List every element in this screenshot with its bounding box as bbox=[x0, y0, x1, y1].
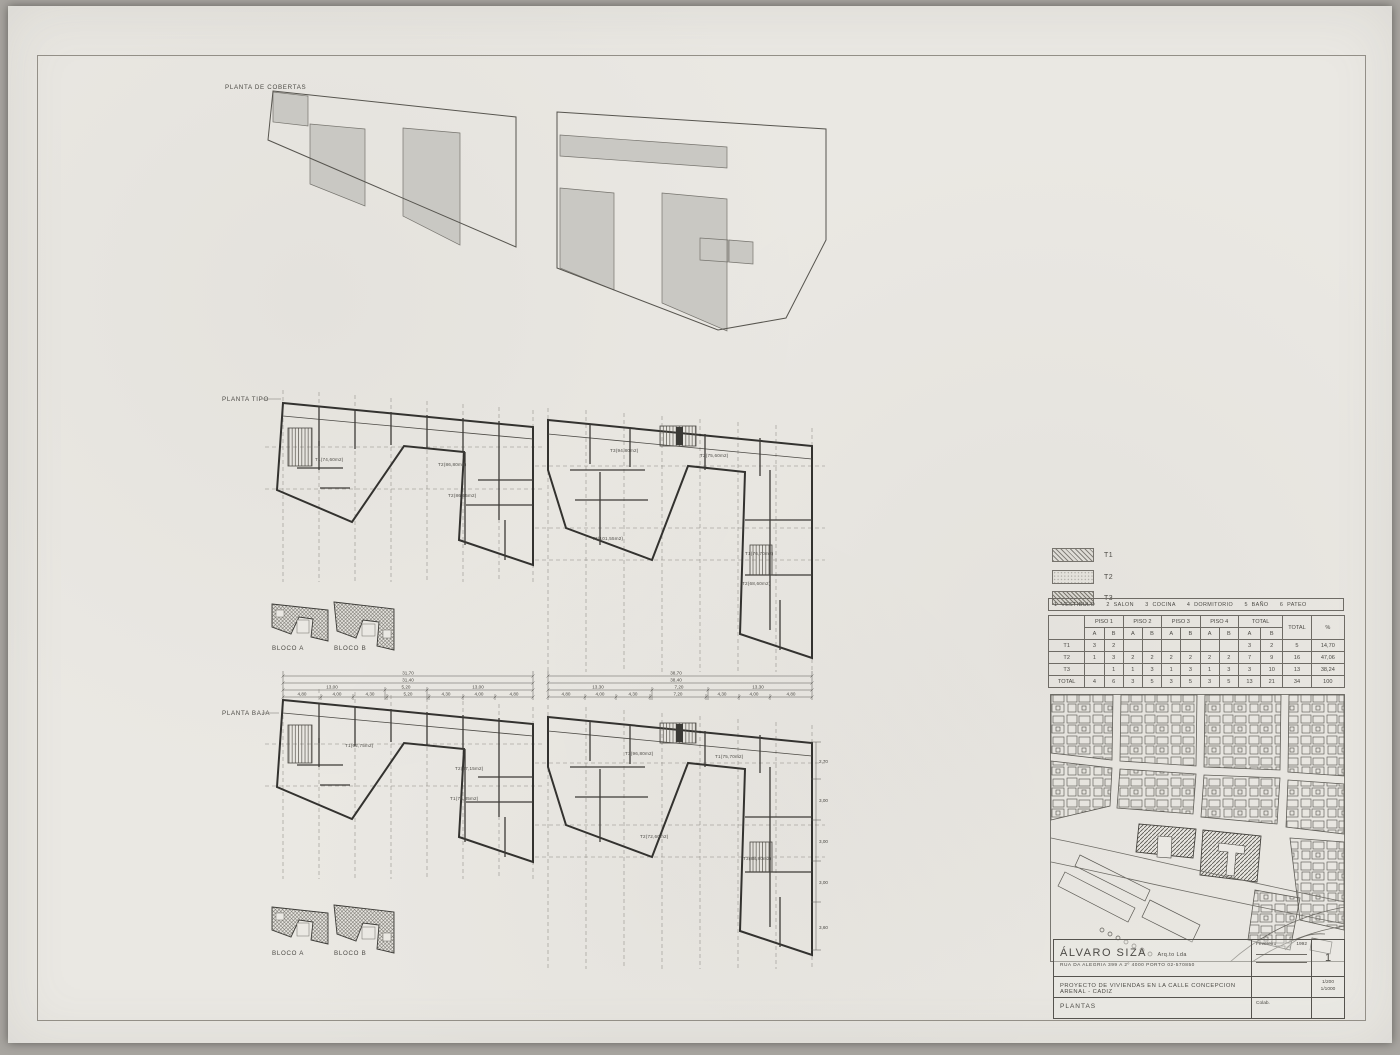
block-a-label: BLOCO A bbox=[272, 645, 304, 652]
ground-plan-label: PLANTA BAJA bbox=[222, 710, 270, 717]
svg-text:5,20: 5,20 bbox=[402, 685, 411, 690]
table-cell: 3 bbox=[1085, 640, 1104, 652]
sheet-title: PLANTAS bbox=[1054, 998, 1252, 1018]
table-cell: PISO 2 bbox=[1123, 616, 1161, 628]
map-project-parcel-a bbox=[1136, 824, 1196, 858]
key-plan-block-a bbox=[272, 604, 328, 641]
date-cell: Fevereiro 1992 bbox=[1252, 940, 1312, 976]
svg-text:3,00: 3,00 bbox=[819, 880, 828, 885]
table-cell: 13 bbox=[1238, 676, 1260, 688]
scanned-drawing-sheet: PLANTA DE COBERTAS PLANTA TIPO bbox=[0, 0, 1400, 1055]
table-cell: 16 bbox=[1283, 652, 1311, 664]
svg-text:4,80: 4,80 bbox=[562, 692, 571, 697]
architect-name: ÁLVARO SIZA bbox=[1060, 947, 1147, 959]
table-cell: A bbox=[1085, 628, 1104, 640]
t2-hatch-swatch bbox=[1052, 570, 1094, 584]
table-cell: 2 bbox=[1181, 652, 1200, 664]
svg-text:4,30: 4,30 bbox=[629, 692, 638, 697]
svg-text:38,40: 38,40 bbox=[670, 678, 682, 683]
table-cell: 3 bbox=[1123, 676, 1142, 688]
table-cell: 3 bbox=[1238, 640, 1260, 652]
legend-row-t2: T2 bbox=[1052, 570, 1113, 584]
unit-label: T2(87,15m2) bbox=[455, 766, 484, 771]
scale-2: 1/1000 bbox=[1312, 986, 1344, 993]
table-cell: 21 bbox=[1261, 676, 1283, 688]
svg-text:3,00: 3,00 bbox=[819, 839, 828, 844]
table-cell: B bbox=[1104, 628, 1123, 640]
empty-cell bbox=[1312, 998, 1344, 1018]
table-cell: 5 bbox=[1181, 676, 1200, 688]
block-a-label: BLOCO A bbox=[272, 950, 304, 957]
svg-text:7,20: 7,20 bbox=[675, 685, 684, 690]
unit-label: T2(72,60m2) bbox=[640, 834, 669, 839]
svg-text:4,30: 4,30 bbox=[366, 692, 375, 697]
table-cell: 38,24 bbox=[1311, 664, 1344, 676]
table-cell: 2 bbox=[1123, 652, 1142, 664]
svg-text:4,80: 4,80 bbox=[510, 692, 519, 697]
svg-text:38,70: 38,70 bbox=[670, 671, 682, 676]
unit-label: T1(76,35m2) bbox=[450, 796, 479, 801]
table-cell: 1 bbox=[1104, 664, 1123, 676]
dimension-text-b: 38,70 38,40 13,30 7,20 13,30 4,80 4,00 4… bbox=[562, 671, 796, 697]
table-cell: 1 bbox=[1162, 664, 1181, 676]
map-city-blocks bbox=[1051, 695, 1344, 950]
table-cell: 5 bbox=[1283, 640, 1311, 652]
table-cell bbox=[1200, 640, 1219, 652]
map-project-parcel-b bbox=[1200, 830, 1261, 882]
table-cell: 3 bbox=[1219, 664, 1238, 676]
svg-text:4,00: 4,00 bbox=[475, 692, 484, 697]
sheet-number: 1 bbox=[1312, 940, 1344, 976]
table-cell: 5 bbox=[1142, 676, 1161, 688]
table-cell: T2 bbox=[1049, 652, 1085, 664]
table-cell: TOTAL bbox=[1049, 676, 1085, 688]
table-cell: A bbox=[1238, 628, 1260, 640]
svg-text:5,20: 5,20 bbox=[404, 692, 413, 697]
unit-label: T1(76,70m2) bbox=[745, 551, 774, 556]
table-cell: 3 bbox=[1238, 664, 1260, 676]
svg-text:13,30: 13,30 bbox=[752, 685, 764, 690]
table-cell: PISO 3 bbox=[1162, 616, 1200, 628]
table-cell: 2 bbox=[1200, 652, 1219, 664]
svg-text:7,20: 7,20 bbox=[674, 692, 683, 697]
svg-text:13,00: 13,00 bbox=[472, 685, 484, 690]
table-cell bbox=[1181, 640, 1200, 652]
table-cell: 2 bbox=[1104, 640, 1123, 652]
table-cell: TOTAL bbox=[1283, 616, 1311, 640]
table-cell: 3 bbox=[1200, 676, 1219, 688]
collaborator-label: Colab. bbox=[1252, 998, 1312, 1018]
table-cell: 6 bbox=[1104, 676, 1123, 688]
table-cell: B bbox=[1219, 628, 1238, 640]
table-cell: 5 bbox=[1219, 676, 1238, 688]
table-cell: 9 bbox=[1261, 652, 1283, 664]
unit-label: T2(68,60m2) bbox=[742, 581, 771, 586]
dimension-text-a: 31,70 31,40 13,00 5,20 13,00 4,80 4,00 4… bbox=[298, 671, 519, 697]
table-cell: A bbox=[1200, 628, 1219, 640]
signature-line bbox=[1256, 955, 1307, 963]
table-row: TOTAL 4 6 3 5 3 5 3 5 13 21 34 100 bbox=[1049, 676, 1345, 688]
table-cell: 2 bbox=[1162, 652, 1181, 664]
date-month: Fevereiro bbox=[1256, 942, 1276, 947]
table-cell: 3 bbox=[1142, 664, 1161, 676]
table-cell: 3 bbox=[1104, 652, 1123, 664]
table-cell: 2 bbox=[1261, 640, 1283, 652]
title-block-row-project: PROYECTO DE VIVIENDAS EN LA CALLE CONCEP… bbox=[1054, 977, 1344, 998]
room-key-bar: 1 VESTIBULO 2 SALON 3 COCINA 4 DORMITORI… bbox=[1048, 598, 1344, 611]
table-cell bbox=[1162, 640, 1181, 652]
table-cell: 2 bbox=[1219, 652, 1238, 664]
key-plan-block-b bbox=[334, 602, 394, 650]
svg-text:4,00: 4,00 bbox=[596, 692, 605, 697]
svg-text:3,00: 3,00 bbox=[819, 798, 828, 803]
table-cell: 2 bbox=[1142, 652, 1161, 664]
dimension-text-b-vertical: 2,70 3,00 3,00 3,00 3,60 bbox=[819, 759, 828, 930]
table-cell: 1 bbox=[1085, 652, 1104, 664]
scale-1: 1/200 bbox=[1312, 979, 1344, 986]
t1-label: T1 bbox=[1104, 552, 1113, 559]
table-cell: 4 bbox=[1085, 676, 1104, 688]
table-cell: A bbox=[1162, 628, 1181, 640]
table-cell: 1 bbox=[1123, 664, 1142, 676]
svg-text:4,80: 4,80 bbox=[298, 692, 307, 697]
legend-row-t1: T1 bbox=[1052, 548, 1113, 562]
table-cell bbox=[1219, 640, 1238, 652]
table-cell: % bbox=[1311, 616, 1344, 640]
scale-cell: 1/200 1/1000 bbox=[1312, 977, 1344, 997]
title-block-row-architect: ÁLVARO SIZA Arq.to Lda RUA DA ALEGRIA 39… bbox=[1054, 940, 1344, 977]
table-row: T3 1 1 3 1 3 1 3 3 10 13 38,24 bbox=[1049, 664, 1345, 676]
table-cell: PISO 1 bbox=[1085, 616, 1123, 628]
block-b-label: BLOCO B bbox=[334, 950, 366, 957]
table-cell: T3 bbox=[1049, 664, 1085, 676]
svg-text:4,30: 4,30 bbox=[718, 692, 727, 697]
table-cell: PISO 4 bbox=[1200, 616, 1238, 628]
site-map bbox=[1050, 694, 1345, 962]
svg-text:13,30: 13,30 bbox=[592, 685, 604, 690]
table-row: T2 1 3 2 2 2 2 2 2 7 9 16 47,06 bbox=[1049, 652, 1345, 664]
date-year: 1992 bbox=[1296, 942, 1307, 947]
table-cell: T1 bbox=[1049, 640, 1085, 652]
unit-label: T3(96,80m2) bbox=[625, 751, 654, 756]
empty-cell bbox=[1252, 977, 1312, 997]
svg-text:4,00: 4,00 bbox=[333, 692, 342, 697]
table-cell: 100 bbox=[1311, 676, 1344, 688]
svg-text:4,00: 4,00 bbox=[750, 692, 759, 697]
table-cell: 13 bbox=[1283, 664, 1311, 676]
unit-label: T3(101,55m2) bbox=[592, 536, 624, 541]
table-cell bbox=[1085, 664, 1104, 676]
unit-label: T1(75,70m2) bbox=[715, 754, 744, 759]
title-block-row-sheet-title: PLANTAS Colab. bbox=[1054, 998, 1344, 1018]
table-cell: 10 bbox=[1261, 664, 1283, 676]
table-cell: 7 bbox=[1238, 652, 1260, 664]
table-cell bbox=[1049, 616, 1085, 640]
architect-cell: ÁLVARO SIZA Arq.to Lda RUA DA ALEGRIA 39… bbox=[1054, 940, 1252, 976]
table-cell: B bbox=[1142, 628, 1161, 640]
table-cell: 3 bbox=[1181, 664, 1200, 676]
architect-address: RUA DA ALEGRIA 399 A 2º 4000 PORTO 02-57… bbox=[1060, 963, 1251, 968]
t1-hatch-swatch bbox=[1052, 548, 1094, 562]
table-cell: 47,06 bbox=[1311, 652, 1344, 664]
unit-label: T2(86,80m2) bbox=[438, 462, 467, 467]
block-b-label: BLOCO B bbox=[334, 645, 366, 652]
typical-plan-label: PLANTA TIPO bbox=[222, 396, 269, 403]
t2-label: T2 bbox=[1104, 574, 1113, 581]
table-cell: B bbox=[1181, 628, 1200, 640]
plan-block-b-geometry bbox=[535, 408, 825, 672]
architect-qualifier: Arq.to Lda bbox=[1157, 952, 1186, 958]
table-cell bbox=[1142, 640, 1161, 652]
table-cell: 3 bbox=[1162, 676, 1181, 688]
plans-drawing: PLANTA DE COBERTAS PLANTA TIPO bbox=[35, 55, 1045, 1020]
svg-text:3,60: 3,60 bbox=[819, 925, 828, 930]
project-title: PROYECTO DE VIVIENDAS EN LA CALLE CONCEP… bbox=[1054, 977, 1252, 997]
table-cell: B bbox=[1261, 628, 1283, 640]
unit-label: T2(75,60m2) bbox=[700, 453, 729, 458]
table-cell: 14,70 bbox=[1311, 640, 1344, 652]
unit-label: T3(88,80m2) bbox=[743, 856, 772, 861]
svg-text:31,70: 31,70 bbox=[402, 671, 414, 676]
unit-count-table: PISO 1 PISO 2 PISO 3 PISO 4 TOTAL TOTAL … bbox=[1048, 615, 1345, 688]
unit-label: T2(86,55m2) bbox=[448, 493, 477, 498]
table-cell: TOTAL bbox=[1238, 616, 1282, 628]
table-row: T1 3 2 3 2 5 14,70 bbox=[1049, 640, 1345, 652]
table-cell: 1 bbox=[1200, 664, 1219, 676]
title-block: ÁLVARO SIZA Arq.to Lda RUA DA ALEGRIA 39… bbox=[1053, 939, 1345, 1019]
svg-text:13,00: 13,00 bbox=[326, 685, 338, 690]
unit-label: T1(62,75m2) bbox=[345, 743, 374, 748]
svg-text:2,70: 2,70 bbox=[819, 759, 828, 764]
svg-text:31,40: 31,40 bbox=[402, 678, 414, 683]
table-cell bbox=[1123, 640, 1142, 652]
plan-block-a-geometry bbox=[265, 390, 545, 582]
table-cell: 34 bbox=[1283, 676, 1311, 688]
table-header-row: PISO 1 PISO 2 PISO 3 PISO 4 TOTAL TOTAL … bbox=[1049, 616, 1345, 628]
roof-plan-label: PLANTA DE COBERTAS bbox=[225, 84, 306, 91]
svg-text:4,30: 4,30 bbox=[442, 692, 451, 697]
roof-plan-block-b bbox=[557, 112, 826, 331]
table-cell: A bbox=[1123, 628, 1142, 640]
unit-label: T3(94,80m2) bbox=[610, 448, 639, 453]
svg-text:4,80: 4,80 bbox=[787, 692, 796, 697]
signature-line bbox=[1256, 947, 1307, 955]
unit-label: T1(74,60m2) bbox=[315, 457, 344, 462]
roof-plan-block-a bbox=[268, 91, 516, 247]
